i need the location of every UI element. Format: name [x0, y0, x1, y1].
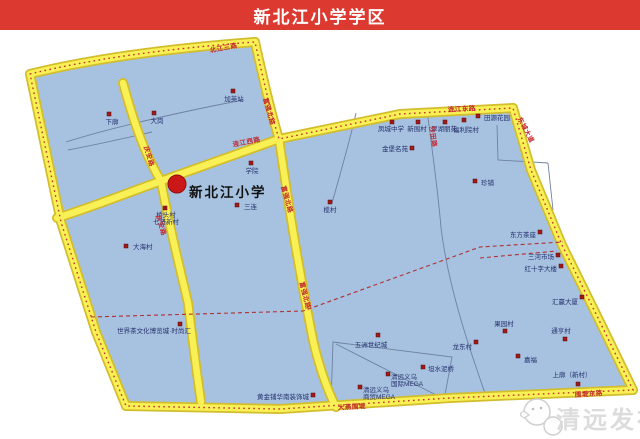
- screenshot-page: 新北江小学学区: [0, 0, 640, 439]
- poi-label: 世界茶文化博览城·时尚汇: [117, 326, 191, 335]
- poi-dot: [462, 118, 466, 122]
- road-label: 连江东路: [448, 103, 476, 113]
- poi-dot: [538, 230, 542, 234]
- poi-label: 龙东村: [453, 342, 473, 351]
- poi-label: 福利院村: [453, 125, 480, 134]
- poi-dot: [124, 244, 128, 248]
- poi-label: 果园村: [494, 319, 514, 328]
- poi-dot: [474, 340, 478, 344]
- watermark: 清远发布: [521, 399, 640, 435]
- poi-label: 五洲世纪城: [355, 340, 388, 349]
- poi-dot: [503, 329, 507, 333]
- district-map: 新北江小学 下廓大岗加英站学院三连榄村桥头村七贤新村大海村凤城中学新围村翠湖丽苑…: [0, 30, 640, 439]
- poi-label: 榄村: [324, 205, 338, 214]
- poi-label: 学院: [246, 166, 260, 175]
- poi-dot: [421, 365, 425, 369]
- poi-dot: [231, 89, 235, 93]
- poi-label: 坦水泥桥: [428, 364, 455, 373]
- poi-label: 新围村: [407, 124, 427, 133]
- school-label: 新北江小学: [189, 184, 267, 200]
- poi-dot: [476, 114, 480, 118]
- poi-label: 下廓: [106, 117, 120, 126]
- poi-dot: [410, 146, 414, 150]
- poi-label: 上廓（新村）: [553, 370, 592, 379]
- poi-dot: [249, 161, 253, 165]
- district-polygon: [30, 42, 633, 409]
- poi-dot: [107, 112, 111, 116]
- poi-label: 大海村: [133, 242, 153, 251]
- page-title: 新北江小学学区: [254, 3, 387, 28]
- poi-dot: [416, 120, 420, 124]
- poi-dot: [376, 333, 380, 337]
- poi-label: 加英站: [224, 94, 244, 103]
- poi-label: 嘉福: [524, 355, 538, 364]
- watermark-eye: [540, 407, 543, 410]
- poi-label: 凤城中学: [378, 124, 405, 133]
- poi-dot: [443, 120, 447, 124]
- poi-dot: [328, 200, 332, 204]
- poi-dot: [311, 393, 315, 397]
- poi-dot: [163, 206, 167, 210]
- poi-dot: [556, 253, 560, 257]
- poi-label: 金堡名苑: [382, 144, 409, 153]
- poi-dot: [390, 120, 394, 124]
- poi-dot: [473, 179, 477, 183]
- poi-label: 三河市场: [528, 252, 555, 261]
- school-dot: [168, 175, 186, 193]
- poi-dot: [178, 322, 182, 326]
- poi-label: 三连: [244, 202, 258, 211]
- title-bar: 新北江小学学区: [0, 0, 640, 30]
- poi-dot: [563, 337, 567, 341]
- poi-dot: [559, 264, 563, 268]
- poi-dot: [235, 203, 239, 207]
- poi-dot: [580, 295, 584, 299]
- poi-label: 大岗: [151, 116, 164, 125]
- poi-label: 汇赢大厦: [552, 297, 579, 306]
- poi-label: 东方茶座: [510, 230, 537, 239]
- watermark-eye: [532, 408, 535, 411]
- poi-label: 红十字大楼: [525, 264, 558, 273]
- poi-dot: [516, 354, 520, 358]
- poi-label: 珍铺: [481, 178, 495, 187]
- poi-dot: [386, 372, 390, 376]
- poi-label: 田源花园: [484, 113, 510, 122]
- poi-dot: [358, 385, 362, 389]
- map-area: 新北江小学 下廓大岗加英站学院三连榄村桥头村七贤新村大海村凤城中学新围村翠湖丽苑…: [0, 30, 640, 439]
- poi-dot: [152, 111, 156, 115]
- watermark-text: 清远发布: [556, 406, 640, 434]
- poi-label: 通亨村: [551, 326, 571, 335]
- poi-dot: [576, 382, 580, 386]
- poi-label: 黄金铺华南装饰城: [257, 392, 310, 401]
